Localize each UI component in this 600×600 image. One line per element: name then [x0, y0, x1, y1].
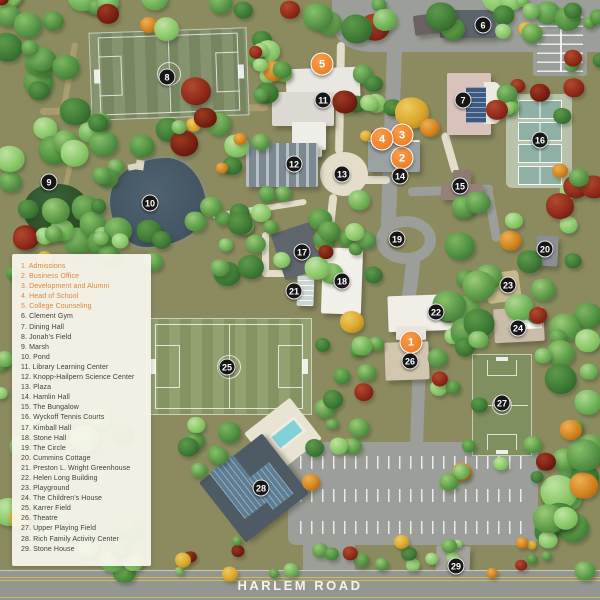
map-marker-17[interactable]: 17 — [294, 244, 311, 261]
map-marker-22[interactable]: 22 — [428, 304, 445, 321]
tree — [540, 475, 577, 509]
legend-item-28: 28. Rich Family Activity Center — [21, 535, 145, 545]
field-goal-bottom — [496, 450, 508, 454]
tree — [571, 465, 599, 491]
tree — [81, 0, 105, 14]
tree — [0, 146, 25, 172]
tree — [354, 553, 370, 567]
plaza-south-walk — [325, 194, 338, 243]
map-marker-11[interactable]: 11 — [315, 92, 332, 109]
map-marker-25[interactable]: 25 — [219, 359, 236, 376]
tree — [368, 337, 383, 351]
tree — [358, 231, 376, 248]
tree — [13, 227, 37, 249]
tree — [539, 531, 558, 548]
legend-item-24: 24. The Children's House — [21, 494, 145, 504]
tree — [550, 483, 582, 512]
tree — [326, 418, 339, 430]
tree — [364, 75, 382, 92]
map-marker-18[interactable]: 18 — [334, 273, 351, 290]
tree — [535, 348, 552, 363]
tree — [94, 0, 116, 16]
tree — [191, 463, 207, 478]
tree — [88, 232, 113, 255]
tree — [209, 446, 224, 460]
tree — [0, 0, 21, 7]
tree — [515, 560, 527, 571]
legend-item-20: 20. Cummins Cottage — [21, 454, 145, 464]
tree — [209, 0, 233, 14]
legend-item-2: 2. Business Office — [21, 272, 145, 282]
tree — [170, 131, 198, 156]
map-marker-21[interactable]: 21 — [286, 283, 303, 300]
legend-item-15: 15. The Bungalow — [21, 403, 145, 413]
tree — [184, 552, 196, 563]
tree — [29, 48, 55, 72]
tree — [581, 330, 600, 347]
tree — [527, 554, 538, 564]
tree — [254, 88, 269, 102]
tree — [275, 187, 291, 202]
pond-walk — [212, 199, 307, 220]
parking-row — [300, 456, 525, 469]
map-marker-29[interactable]: 29 — [448, 558, 465, 575]
tree — [499, 230, 522, 251]
tree — [541, 552, 552, 562]
harlem-road-label: HARLEM ROAD — [0, 578, 600, 593]
tree — [432, 371, 448, 386]
tree — [559, 466, 575, 481]
tree — [560, 420, 582, 440]
tree — [569, 472, 598, 499]
field-box-right — [215, 52, 240, 92]
tree — [546, 193, 574, 219]
field-box-left — [98, 56, 123, 96]
map-marker-14[interactable]: 14 — [392, 168, 409, 185]
tree — [249, 46, 263, 58]
tree — [575, 329, 600, 353]
map-marker-12[interactable]: 12 — [286, 156, 303, 173]
parking-row — [300, 489, 525, 502]
dining-patio — [484, 82, 504, 124]
legend-item-6: 6. Clement Gym — [21, 312, 145, 322]
tree — [354, 383, 373, 401]
tree — [549, 314, 580, 342]
map-marker-1[interactable]: 1 — [400, 331, 423, 354]
tree — [575, 390, 600, 415]
tree — [89, 130, 117, 156]
tree — [357, 364, 376, 382]
tree — [223, 157, 243, 175]
tree — [580, 363, 598, 380]
tree — [446, 381, 461, 395]
tree — [216, 162, 228, 173]
tree — [560, 216, 579, 233]
tree — [531, 278, 555, 300]
tree — [360, 94, 378, 110]
tree — [535, 520, 560, 543]
library-walk — [335, 42, 345, 154]
legend-list: 1. Admissions2. Business Office3. Develo… — [21, 262, 145, 555]
tree — [97, 4, 119, 24]
legend-item-26: 26. Theatre — [21, 514, 145, 524]
plaza-to-drive-walk — [360, 176, 390, 184]
tree — [345, 223, 365, 241]
legend-item-23: 23. Playground — [21, 484, 145, 494]
map-marker-23[interactable]: 23 — [500, 277, 517, 294]
campus-map: HARLEM ROAD 1. Admissions2. Business Off… — [0, 0, 600, 600]
east-spur-down — [484, 190, 502, 243]
tree — [444, 328, 461, 344]
tree — [348, 96, 366, 113]
tree — [557, 513, 589, 542]
tree — [464, 309, 495, 337]
tree — [25, 47, 58, 77]
map-marker-8[interactable]: 8 — [159, 69, 176, 86]
tree — [231, 545, 244, 557]
tree — [234, 1, 252, 18]
tree — [130, 135, 155, 158]
tree — [218, 422, 240, 442]
tree — [43, 12, 64, 31]
tree — [0, 0, 23, 9]
legend-item-14: 14. Hamlin Hall — [21, 393, 145, 403]
tree — [0, 359, 7, 371]
tree — [253, 59, 267, 72]
tree — [352, 336, 373, 355]
field-goal-left — [94, 70, 100, 84]
map-marker-15[interactable]: 15 — [452, 178, 469, 195]
tree — [366, 94, 386, 112]
tree — [581, 175, 600, 198]
marsh-area — [24, 184, 88, 236]
tree — [544, 502, 577, 532]
tree — [303, 3, 333, 31]
tree — [29, 81, 50, 101]
tree — [22, 40, 39, 56]
legend-item-27: 27. Upper Playing Field — [21, 524, 145, 534]
map-marker-19[interactable]: 19 — [389, 231, 406, 248]
tree — [333, 369, 350, 385]
tree — [253, 43, 268, 57]
map-marker-16[interactable]: 16 — [532, 132, 549, 149]
tree — [445, 232, 475, 260]
legend-item-19: 19. The Circle — [21, 444, 145, 454]
tree — [34, 118, 57, 139]
legend-item-4: 4. Head of School — [21, 292, 145, 302]
map-marker-9[interactable]: 9 — [41, 174, 58, 191]
tree — [592, 54, 600, 67]
greenhouse-walk-v — [262, 232, 269, 276]
parking-row — [300, 521, 525, 534]
tree — [536, 453, 556, 471]
tree — [94, 232, 109, 246]
map-marker-27[interactable]: 27 — [494, 395, 511, 412]
tree — [0, 0, 9, 5]
field-box-left — [155, 345, 180, 389]
tree — [427, 349, 448, 368]
tree — [0, 171, 21, 192]
tree — [554, 507, 578, 529]
tree — [552, 448, 577, 471]
tree — [401, 547, 417, 562]
tree — [0, 387, 7, 399]
legend-item-25: 25. Karrer Field — [21, 504, 145, 514]
field-box-bottom — [487, 434, 517, 450]
field-path-west — [60, 42, 78, 114]
tree — [259, 68, 276, 84]
field-box-right — [278, 345, 303, 389]
tree — [0, 4, 21, 27]
legend-item-9: 9. Marsh — [21, 343, 145, 353]
map-marker-20[interactable]: 20 — [537, 241, 554, 258]
tree — [141, 0, 169, 11]
tree — [91, 199, 107, 214]
map-marker-6[interactable]: 6 — [475, 17, 492, 34]
tree — [469, 331, 488, 349]
tree — [540, 486, 566, 510]
legend-item-18: 18. Stone Hall — [21, 434, 145, 444]
tree — [88, 0, 106, 15]
tennis-court — [518, 100, 562, 119]
map-marker-10[interactable]: 10 — [142, 195, 159, 212]
tree — [252, 31, 272, 49]
tree — [78, 123, 99, 142]
tree — [430, 380, 448, 396]
field-goal-right — [238, 64, 244, 78]
field-box-top — [487, 360, 517, 376]
tennis-court — [518, 166, 562, 185]
legend-item-8: 8. Jonah's Field — [21, 333, 145, 343]
legend-item-12: 12. Knopp-Hailpern Science Center — [21, 373, 145, 383]
tree — [185, 432, 205, 450]
tree — [24, 68, 53, 95]
tree — [97, 0, 119, 12]
tree — [505, 212, 523, 229]
legend-item-5: 5. College Counseling — [21, 302, 145, 312]
field-goal-left — [150, 359, 156, 374]
tree — [95, 227, 113, 243]
legend-item-7: 7. Dining Hall — [21, 323, 145, 333]
tree — [573, 302, 600, 328]
tree — [350, 344, 364, 357]
tree — [456, 270, 476, 288]
the-circle-road — [376, 216, 436, 264]
legend-item-11: 11. Library Learning Center — [21, 363, 145, 373]
field-goal-right — [302, 359, 308, 374]
legend-item-3: 3. Development and Alumni — [21, 282, 145, 292]
tree — [550, 329, 567, 344]
tree — [565, 253, 582, 269]
tree — [234, 216, 254, 234]
map-marker-13[interactable]: 13 — [334, 166, 351, 183]
tree — [92, 167, 111, 185]
parking-divider-line — [560, 16, 562, 72]
tree — [315, 338, 330, 352]
map-marker-28[interactable]: 28 — [253, 480, 270, 497]
tree — [233, 536, 243, 545]
tree — [315, 399, 336, 418]
tree — [234, 133, 247, 145]
tree — [264, 62, 286, 82]
tree — [214, 261, 240, 285]
tree — [568, 420, 584, 435]
legend-item-13: 13. Plaza — [21, 383, 145, 393]
map-marker-24[interactable]: 24 — [510, 320, 527, 337]
legend-item-29: 29. Stone House — [21, 545, 145, 555]
tree — [259, 186, 277, 202]
tree — [178, 438, 199, 457]
tree — [0, 33, 23, 61]
tree — [14, 12, 42, 38]
tree — [575, 434, 600, 461]
legend-item-21: 21. Preston L. Wright Greenhouse — [21, 464, 145, 474]
tree — [420, 119, 440, 137]
tree — [545, 364, 578, 394]
tree — [172, 120, 187, 134]
road-line — [0, 597, 600, 598]
tree — [39, 136, 70, 165]
pond-pier — [135, 159, 144, 170]
tree — [364, 266, 383, 283]
tree — [175, 553, 191, 568]
tree — [186, 118, 202, 132]
tree — [90, 236, 104, 249]
tree — [579, 440, 600, 463]
dining-walk — [440, 132, 459, 175]
legend-item-22: 22. Helen Long Building — [21, 474, 145, 484]
tree — [567, 439, 600, 471]
building-clement-gym-wing — [413, 12, 445, 36]
tree — [547, 341, 575, 367]
tree — [188, 417, 205, 433]
legend-item-16: 16. Wyckoff Tennis Courts — [21, 413, 145, 423]
tree — [323, 390, 343, 408]
legend-item-1: 1. Admissions — [21, 262, 145, 272]
tree — [0, 2, 13, 20]
tree — [248, 51, 265, 66]
building-knopp-hailpern — [246, 143, 318, 187]
tree — [338, 231, 355, 246]
map-marker-5[interactable]: 5 — [311, 53, 334, 76]
legend-item-10: 10. Pond — [21, 353, 145, 363]
tree — [238, 255, 264, 279]
tree — [68, 0, 98, 11]
tree — [510, 79, 525, 93]
field-goal-top — [496, 357, 508, 361]
legend-panel: 1. Admissions2. Business Office3. Develo… — [12, 254, 151, 566]
tree — [211, 260, 230, 277]
map-marker-2[interactable]: 2 — [391, 147, 414, 170]
tree — [375, 558, 389, 571]
tree — [349, 418, 370, 437]
map-marker-4[interactable]: 4 — [371, 128, 394, 151]
map-marker-7[interactable]: 7 — [455, 92, 472, 109]
tree — [155, 117, 181, 141]
parking-driveway — [303, 538, 355, 572]
map-marker-26[interactable]: 26 — [402, 353, 419, 370]
legend-item-17: 17. Kimball Hall — [21, 424, 145, 434]
tree — [280, 1, 300, 19]
tree — [219, 238, 233, 251]
map-marker-3[interactable]: 3 — [391, 124, 414, 147]
tree — [257, 40, 281, 62]
